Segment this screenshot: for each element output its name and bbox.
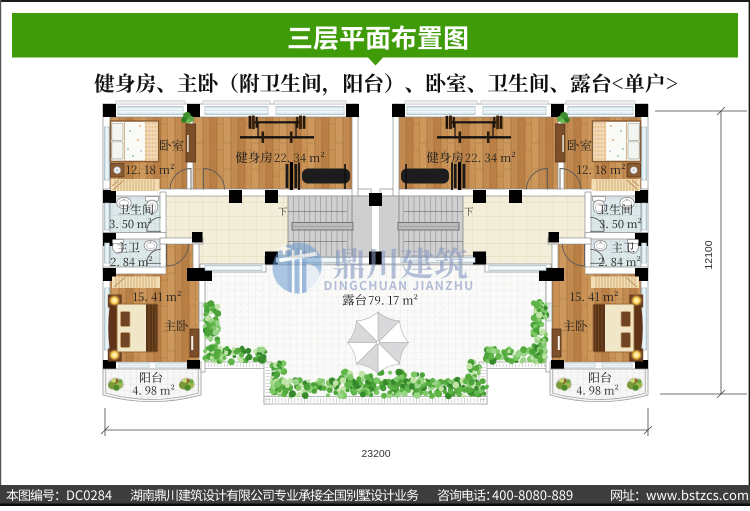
svg-text:12100: 12100 [703, 240, 715, 269]
svg-text:23200: 23200 [361, 448, 390, 460]
